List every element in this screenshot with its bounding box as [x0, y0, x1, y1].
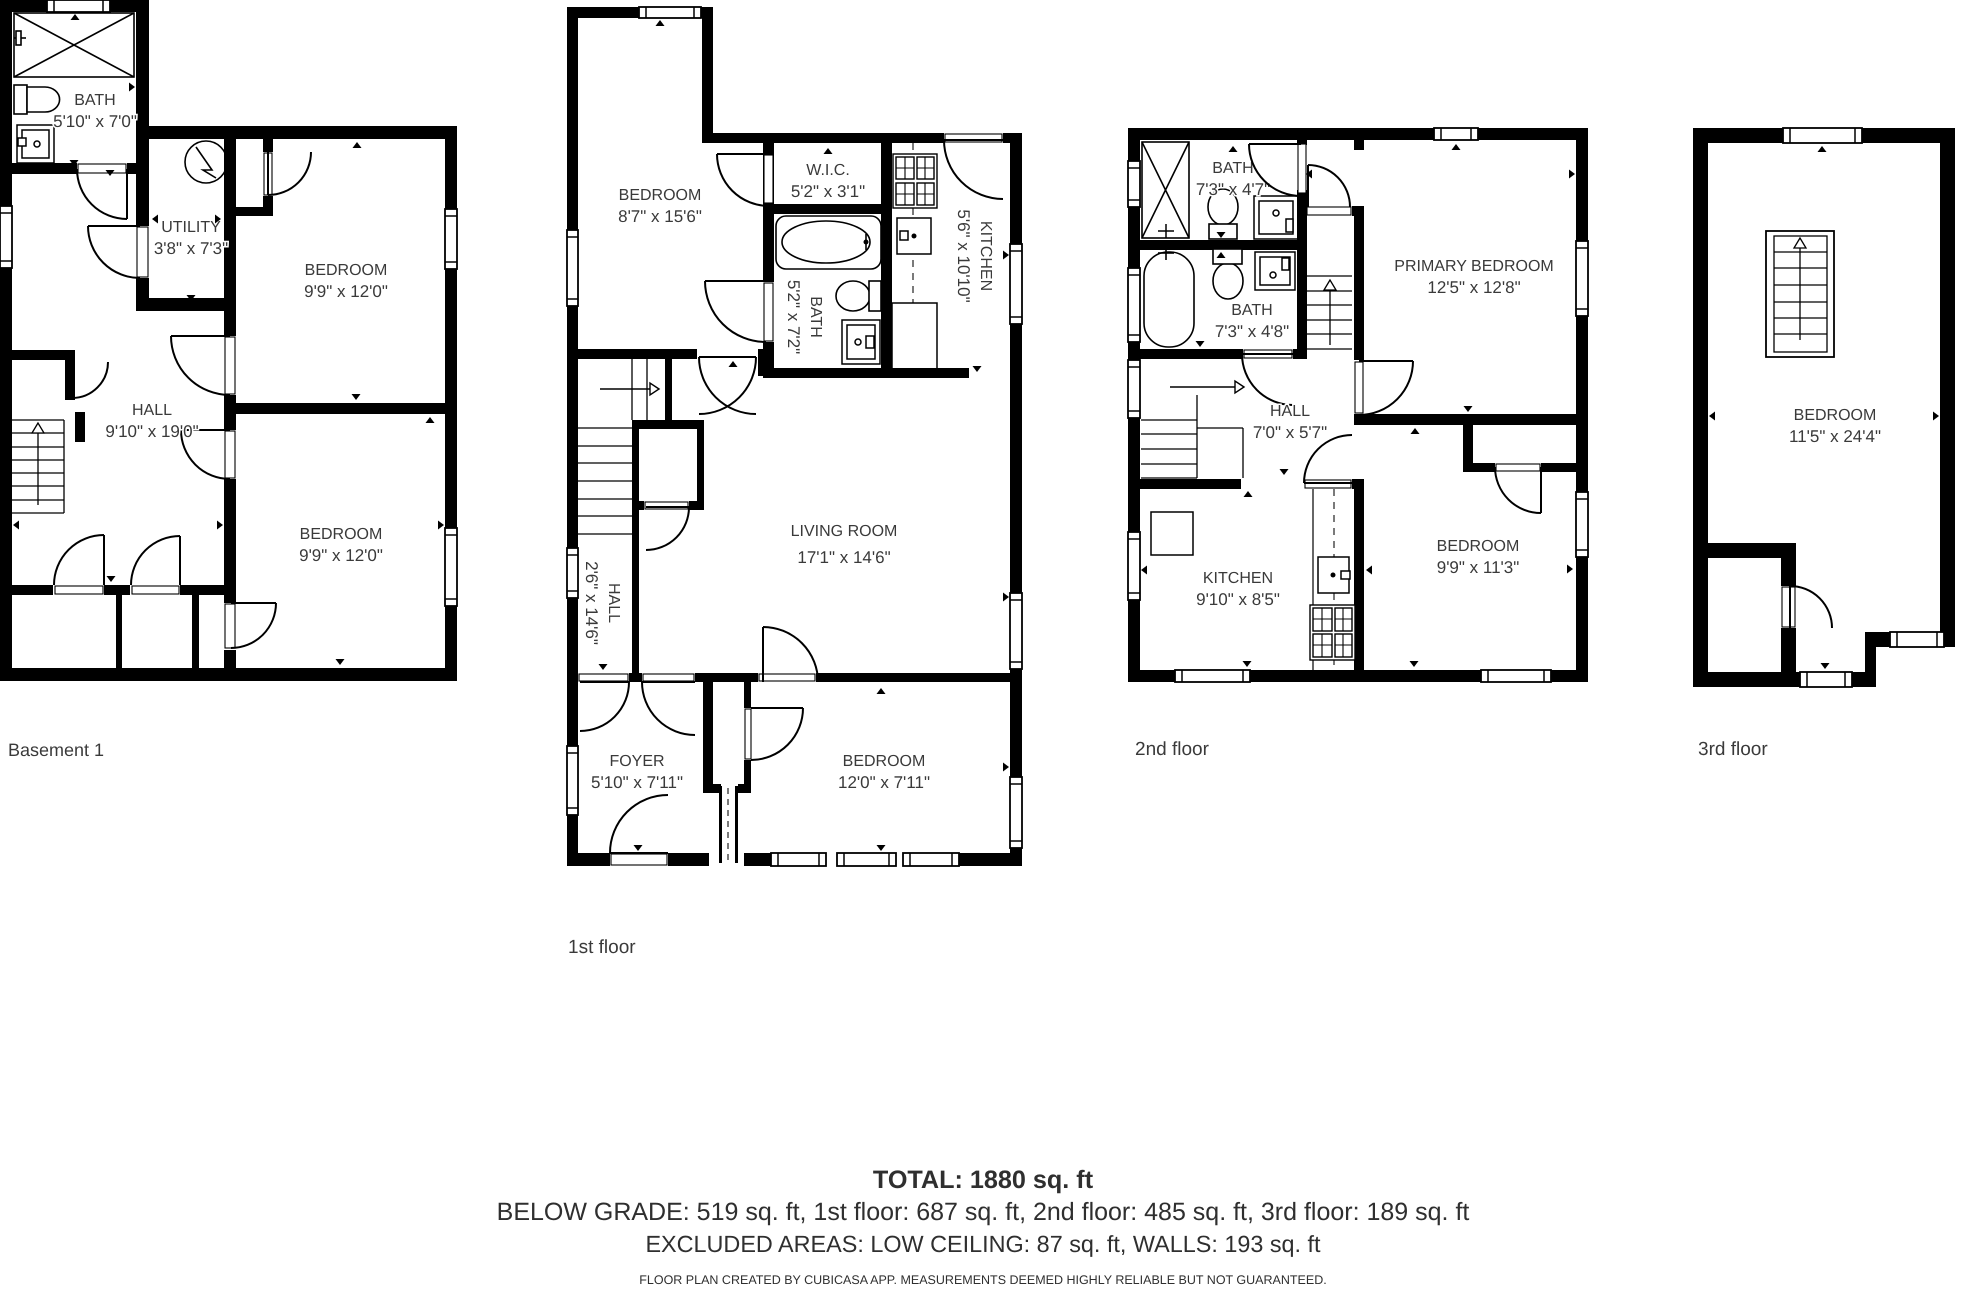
svg-text:BEDROOM9'9" x 12'0": BEDROOM9'9" x 12'0" — [299, 526, 383, 565]
svg-text:BEDROOM9'9" x 11'3": BEDROOM9'9" x 11'3" — [1437, 538, 1520, 577]
svg-text:TOTAL: 1880 sq. ft: TOTAL: 1880 sq. ft — [873, 1166, 1094, 1194]
svg-text:BEDROOM12'0" x 7'11": BEDROOM12'0" x 7'11" — [838, 753, 930, 792]
svg-text:BELOW GRADE: 519 sq. ft, 1st f: BELOW GRADE: 519 sq. ft, 1st floor: 687 … — [497, 1198, 1470, 1226]
svg-text:Basement 1: Basement 1 — [8, 740, 104, 760]
svg-text:FLOOR PLAN CREATED BY CUBICASA: FLOOR PLAN CREATED BY CUBICASA APP. MEAS… — [639, 1273, 1326, 1287]
svg-text:1st floor: 1st floor — [568, 937, 636, 958]
svg-text:BEDROOM11'5" x 24'4": BEDROOM11'5" x 24'4" — [1789, 407, 1881, 446]
svg-text:EXCLUDED AREAS: LOW CEILING: 8: EXCLUDED AREAS: LOW CEILING: 87 sq. ft, … — [645, 1231, 1321, 1257]
svg-text:BEDROOM8'7" x 15'6": BEDROOM8'7" x 15'6" — [618, 187, 702, 226]
svg-text:BEDROOM9'9" x 12'0": BEDROOM9'9" x 12'0" — [304, 262, 388, 301]
svg-text:2nd floor: 2nd floor — [1135, 739, 1210, 760]
svg-text:3rd floor: 3rd floor — [1698, 739, 1768, 760]
svg-text:KITCHEN9'10" x 8'5": KITCHEN9'10" x 8'5" — [1196, 570, 1280, 609]
svg-text:UTILITY3'8" x 7'3": UTILITY3'8" x 7'3" — [154, 219, 228, 258]
